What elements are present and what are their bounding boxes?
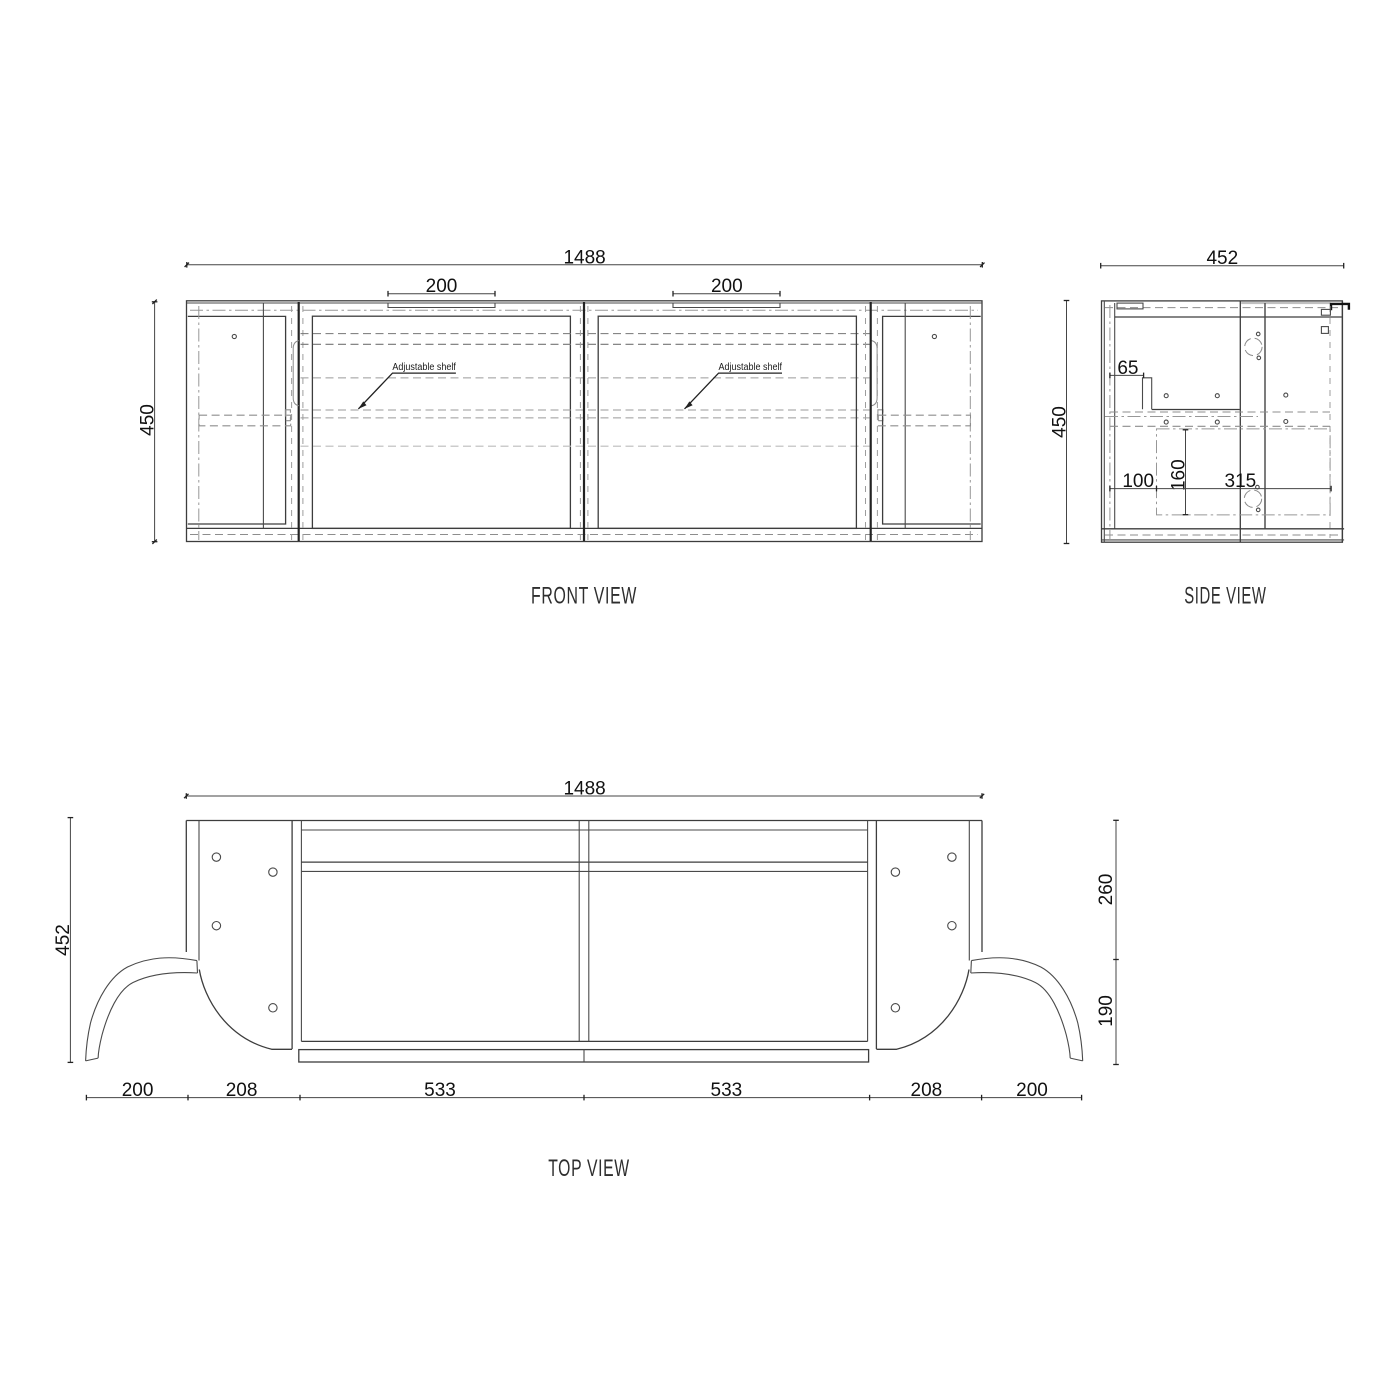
svg-text:TOP VIEW: TOP VIEW (548, 1155, 630, 1182)
svg-text:533: 533 (711, 1080, 743, 1101)
svg-text:200: 200 (122, 1080, 154, 1101)
svg-text:450: 450 (138, 404, 159, 436)
svg-text:1488: 1488 (563, 247, 605, 268)
svg-text:200: 200 (426, 276, 458, 297)
svg-text:533: 533 (424, 1080, 456, 1101)
svg-text:452: 452 (1206, 248, 1238, 269)
svg-text:200: 200 (1016, 1080, 1048, 1101)
svg-text:208: 208 (911, 1080, 943, 1101)
svg-text:65: 65 (1117, 358, 1138, 379)
svg-text:452: 452 (53, 924, 74, 956)
svg-text:190: 190 (1096, 995, 1117, 1027)
svg-text:260: 260 (1096, 874, 1117, 906)
svg-text:208: 208 (226, 1080, 258, 1101)
svg-text:Adjustable shelf: Adjustable shelf (719, 362, 783, 373)
svg-text:200: 200 (711, 276, 743, 297)
svg-text:1488: 1488 (563, 779, 605, 800)
svg-text:Adjustable shelf: Adjustable shelf (392, 362, 456, 373)
svg-text:100: 100 (1122, 471, 1154, 492)
svg-text:FRONT VIEW: FRONT VIEW (531, 583, 637, 610)
svg-text:160: 160 (1168, 459, 1189, 491)
svg-text:SIDE VIEW: SIDE VIEW (1184, 583, 1266, 610)
svg-text:315: 315 (1225, 471, 1257, 492)
svg-text:450: 450 (1049, 406, 1070, 438)
